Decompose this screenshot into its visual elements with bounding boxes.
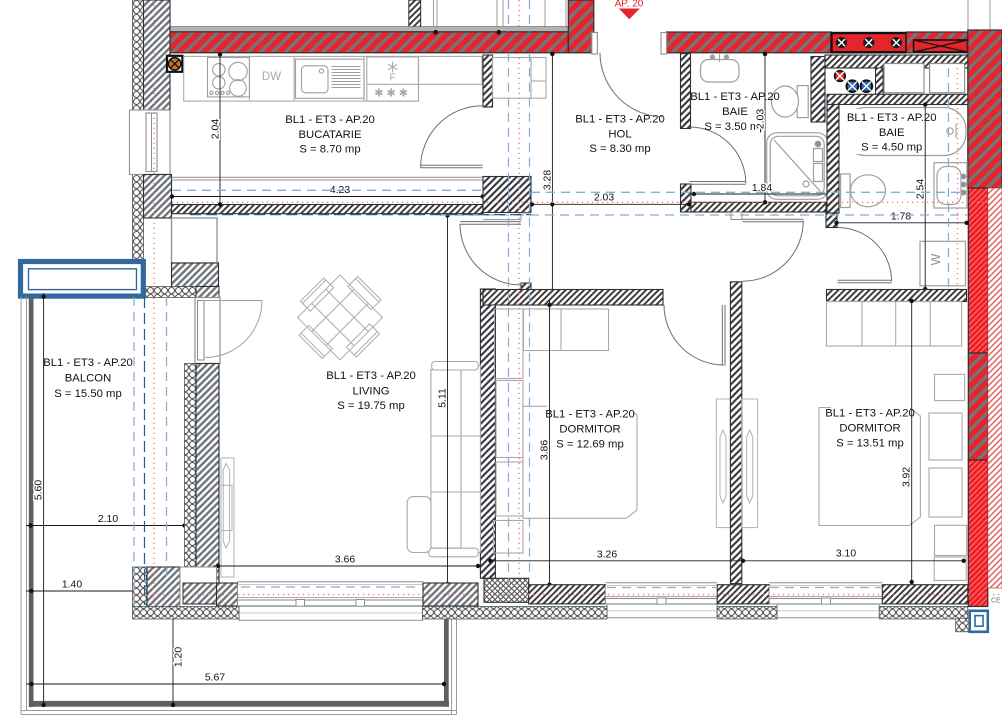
svg-text:1.78: 1.78 xyxy=(891,211,911,222)
svg-text:3.66: 3.66 xyxy=(335,555,355,566)
svg-text:W: W xyxy=(929,253,943,265)
svg-text:✱✱✱: ✱✱✱ xyxy=(374,88,411,100)
svg-text:BAIE: BAIE xyxy=(879,127,905,139)
svg-text:DORMITOR: DORMITOR xyxy=(559,424,620,436)
svg-text:BL1 - ET3 - AP.20: BL1 - ET3 - AP.20 xyxy=(545,409,635,421)
svg-text:BL1 - ET3 - AP.20: BL1 - ET3 - AP.20 xyxy=(326,370,416,382)
svg-text:AP. 20: AP. 20 xyxy=(615,0,644,10)
svg-text:BL1 - ET3 - AP.20: BL1 - ET3 - AP.20 xyxy=(690,91,780,103)
svg-text:F: F xyxy=(390,73,396,84)
svg-text:3.10: 3.10 xyxy=(836,548,856,559)
svg-text:DORMITOR: DORMITOR xyxy=(839,423,900,435)
svg-text:DW: DW xyxy=(262,71,281,83)
svg-text:S = 8.70 mp: S = 8.70 mp xyxy=(299,144,360,156)
svg-text:3.92: 3.92 xyxy=(902,467,913,487)
svg-text:BL1 - ET3 - AP.20: BL1 - ET3 - AP.20 xyxy=(43,357,133,369)
svg-text:1.20: 1.20 xyxy=(174,647,185,667)
svg-text:3.28: 3.28 xyxy=(543,170,554,190)
svg-text:LIVING: LIVING xyxy=(352,386,389,398)
svg-text:BAIE: BAIE xyxy=(722,106,748,118)
svg-text:S = 4.50 mp: S = 4.50 mp xyxy=(861,142,922,154)
svg-text:S = 8.30 mp: S = 8.30 mp xyxy=(589,143,650,155)
svg-text:HOL: HOL xyxy=(608,129,631,141)
svg-text:2.03: 2.03 xyxy=(594,193,614,204)
svg-text:2.04: 2.04 xyxy=(211,119,222,139)
svg-text:BL1 - ET3 - AP.20: BL1 - ET3 - AP.20 xyxy=(847,112,937,124)
svg-text:S = 15.50 mp: S = 15.50 mp xyxy=(54,388,122,400)
svg-text:1.40: 1.40 xyxy=(62,580,82,591)
svg-text:S = 12.69 mp: S = 12.69 mp xyxy=(556,439,624,451)
svg-text:5.67: 5.67 xyxy=(205,673,225,684)
svg-text:BUCATARIE: BUCATARIE xyxy=(299,129,362,141)
svg-text:S = 19.75 mp: S = 19.75 mp xyxy=(337,400,405,412)
svg-text:BL1 - ET3 - AP.20: BL1 - ET3 - AP.20 xyxy=(285,114,375,126)
svg-text:3.26: 3.26 xyxy=(597,549,617,560)
svg-text:BALCON: BALCON xyxy=(65,373,111,385)
svg-text:5.11: 5.11 xyxy=(438,388,449,408)
svg-text:2.10: 2.10 xyxy=(98,514,118,525)
svg-text:S = 13.51 mp: S = 13.51 mp xyxy=(836,438,904,450)
svg-text:3.86: 3.86 xyxy=(540,440,551,460)
svg-text:BL1 - ET3 - AP.20: BL1 - ET3 - AP.20 xyxy=(825,408,915,420)
svg-text:2.54: 2.54 xyxy=(916,179,927,199)
svg-text:2.03: 2.03 xyxy=(756,109,767,129)
svg-text:5.60: 5.60 xyxy=(34,480,45,500)
svg-text:CE: CE xyxy=(991,598,1001,605)
